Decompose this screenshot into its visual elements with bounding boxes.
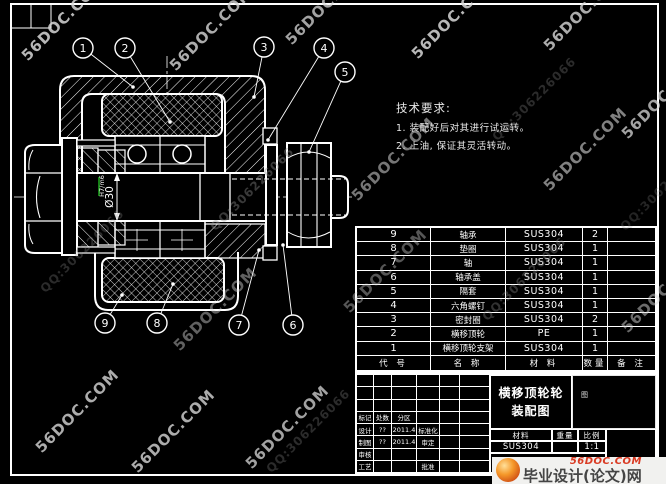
title-block-cell: 批准 — [417, 461, 440, 473]
title-block-cell — [392, 461, 417, 473]
drawing-number-mark: 图 — [581, 391, 588, 399]
parts-cell: 1 — [357, 342, 431, 356]
title-block-cell — [460, 436, 490, 448]
parts-cell: 横移顶轮 — [431, 327, 506, 341]
shaft-end-stub — [331, 176, 348, 218]
parts-cell: 垫圈 — [431, 242, 506, 256]
title-block-cell — [374, 461, 392, 473]
parts-cell — [608, 228, 656, 242]
title-block-cell — [440, 412, 460, 424]
parts-cell: 轴 — [431, 256, 506, 270]
parts-cell: 4 — [357, 299, 431, 313]
tech-requirements-lines: 1. 装配好后对其进行试运转。2. 上油, 保证其灵活转动。 — [396, 120, 546, 152]
svg-text:5: 5 — [342, 66, 349, 79]
weight-value — [552, 441, 578, 453]
parts-cell: SUS304 — [506, 228, 583, 242]
title-block-cell: ?? — [374, 436, 392, 448]
title-block-cell — [440, 400, 460, 412]
title-block-cell — [460, 424, 490, 436]
title-block-cell — [374, 449, 392, 461]
parts-cell: 轴承 — [431, 228, 506, 242]
wheel-top-section — [102, 94, 222, 136]
title-block-cell — [440, 449, 460, 461]
bearing-bottom — [115, 221, 205, 258]
footer-site-name: 毕业设计(论文)网 — [523, 465, 642, 484]
material-label: 材料 — [490, 429, 552, 441]
dimension-fit: H7/m6 — [98, 175, 106, 197]
material-value: SUS304 — [490, 441, 552, 453]
parts-cell: 1 — [583, 299, 608, 313]
hex-bolt-head — [25, 145, 62, 253]
title-block-cell — [460, 449, 490, 461]
scale-label: 比例 — [578, 429, 606, 441]
parts-cell: 1 — [583, 256, 608, 270]
title-block-cell — [460, 461, 490, 473]
title-block-cell — [357, 387, 374, 399]
parts-cell — [608, 242, 656, 256]
parts-cell: 5 — [357, 285, 431, 299]
parts-cell: 2 — [357, 327, 431, 341]
svg-text:9: 9 — [102, 317, 109, 330]
title-block-cell — [374, 400, 392, 412]
title-block-cell — [392, 449, 417, 461]
parts-header-cell: 代 号 — [357, 356, 431, 371]
footer-logo-band: 56DOC.COM 毕业设计(论文)网 — [492, 457, 666, 484]
drawing-number-cell: 图 — [572, 375, 656, 429]
parts-cell — [608, 285, 656, 299]
title-block-cell: 制图 — [357, 436, 374, 448]
title-block-cell — [440, 461, 460, 473]
parts-cell: 9 — [357, 228, 431, 242]
title-block-cell — [417, 387, 440, 399]
title-block-cell: 审定 — [417, 436, 440, 448]
svg-text:4: 4 — [321, 42, 328, 55]
title-block-cell — [374, 375, 392, 387]
shaft-section — [62, 173, 266, 221]
title-block-cell — [417, 400, 440, 412]
parts-cell — [608, 327, 656, 341]
title-block-cell: 标准化 — [417, 424, 440, 436]
parts-cell: 六角螺钉 — [431, 299, 506, 313]
title-block-cell — [357, 400, 374, 412]
parts-cell: 8 — [357, 242, 431, 256]
title-block-revision-grid: 标记处数分区设计??2011.4标准化制图??2011.4审定审核工艺批准 — [357, 375, 490, 473]
title-block-cell — [392, 375, 417, 387]
title-block-cell — [460, 375, 490, 387]
globe-logo-icon — [496, 458, 520, 482]
tech-requirement-line: 1. 装配好后对其进行试运转。 — [396, 120, 546, 134]
balloon-4: 4 — [266, 38, 334, 142]
tech-requirement-line: 2. 上油, 保证其灵活转动。 — [396, 138, 546, 152]
svg-text:6: 6 — [290, 319, 297, 332]
tech-requirements: 技术要求: 1. 装配好后对其进行试运转。2. 上油, 保证其灵活转动。 — [396, 100, 546, 152]
title-block-cell — [392, 387, 417, 399]
weight-label: 重量 — [552, 429, 578, 441]
title-block-cell: 工艺 — [357, 461, 374, 473]
parts-cell: 1 — [583, 242, 608, 256]
parts-cell — [608, 342, 656, 356]
title-block-cell — [417, 375, 440, 387]
parts-cell: 2 — [583, 228, 608, 242]
drawing-title: 横移顶轮轮 装配图 — [490, 375, 572, 429]
title-block-cell: 设计 — [357, 424, 374, 436]
parts-cell: 1 — [583, 342, 608, 356]
parts-cell: 1 — [583, 271, 608, 285]
parts-cell — [608, 256, 656, 270]
parts-cell: 2 — [583, 313, 608, 327]
title-block-cell: 标记 — [357, 412, 374, 424]
svg-text:8: 8 — [154, 317, 161, 330]
svg-text:3: 3 — [261, 41, 268, 54]
balloon-7: 7 — [229, 248, 261, 335]
tech-requirements-title: 技术要求: — [396, 100, 546, 116]
drawing-title-line2: 装配图 — [511, 402, 550, 420]
parts-header-cell: 备 注 — [608, 356, 656, 371]
title-block-cell — [417, 449, 440, 461]
svg-text:2: 2 — [122, 42, 129, 55]
parts-cell — [608, 299, 656, 313]
scale-value: 1:1 — [578, 441, 606, 453]
title-block-cell — [374, 387, 392, 399]
parts-cell: SUS304 — [506, 342, 583, 356]
title-block-cell — [440, 436, 460, 448]
parts-cell: 3 — [357, 313, 431, 327]
title-block-cell: 分区 — [392, 412, 417, 424]
parts-cell: 轴承盖 — [431, 271, 506, 285]
bearing-top — [115, 136, 205, 173]
title-block-cell — [440, 424, 460, 436]
svg-text:1: 1 — [80, 42, 87, 55]
title-block-cell — [460, 412, 490, 424]
parts-cell: SUS304 — [506, 242, 583, 256]
hex-nut — [287, 143, 331, 247]
parts-cell: PE — [506, 327, 583, 341]
parts-cell: 1 — [583, 285, 608, 299]
title-block-cell — [357, 375, 374, 387]
parts-cell: SUS304 — [506, 313, 583, 327]
parts-header-cell: 材 料 — [506, 356, 583, 371]
title-block-cell: 处数 — [374, 412, 392, 424]
balloon-6: 6 — [281, 243, 303, 335]
parts-cell: 1 — [583, 327, 608, 341]
title-block-cell — [440, 375, 460, 387]
svg-text:7: 7 — [236, 319, 243, 332]
parts-cell: SUS304 — [506, 299, 583, 313]
parts-cell: SUS304 — [506, 285, 583, 299]
title-block-cell: 2011.4 — [392, 424, 417, 436]
parts-cell: 密封圈 — [431, 313, 506, 327]
parts-cell — [608, 271, 656, 285]
title-block-cell — [460, 400, 490, 412]
title-block-cell: ?? — [374, 424, 392, 436]
title-block-cell: 2011.4 — [392, 436, 417, 448]
parts-header-cell: 数量 — [583, 356, 608, 371]
parts-header-cell: 名 称 — [431, 356, 506, 371]
washer-section — [263, 128, 277, 260]
title-block-cell — [440, 387, 460, 399]
parts-cell: SUS304 — [506, 271, 583, 285]
parts-cell: SUS304 — [506, 256, 583, 270]
parts-cell: 7 — [357, 256, 431, 270]
parts-cell: 6 — [357, 271, 431, 285]
parts-cell — [608, 313, 656, 327]
title-block-cell — [417, 412, 440, 424]
parts-cell: 隔套 — [431, 285, 506, 299]
title-block-cell: 审核 — [357, 449, 374, 461]
parts-cell: 横移顶轮支架 — [431, 342, 506, 356]
balloon-5: 5 — [307, 62, 355, 154]
title-block-cell — [460, 387, 490, 399]
drawing-title-line1: 横移顶轮轮 — [498, 384, 563, 402]
title-block-cell — [392, 400, 417, 412]
parts-list-table: 9轴承SUS30428垫圈SUS30417轴SUS30416轴承盖SUS3041… — [355, 226, 658, 373]
cad-canvas: Ø30 H7/m6 123459876 技术要求: 1. 装配好后对其进行试运转… — [0, 0, 666, 484]
